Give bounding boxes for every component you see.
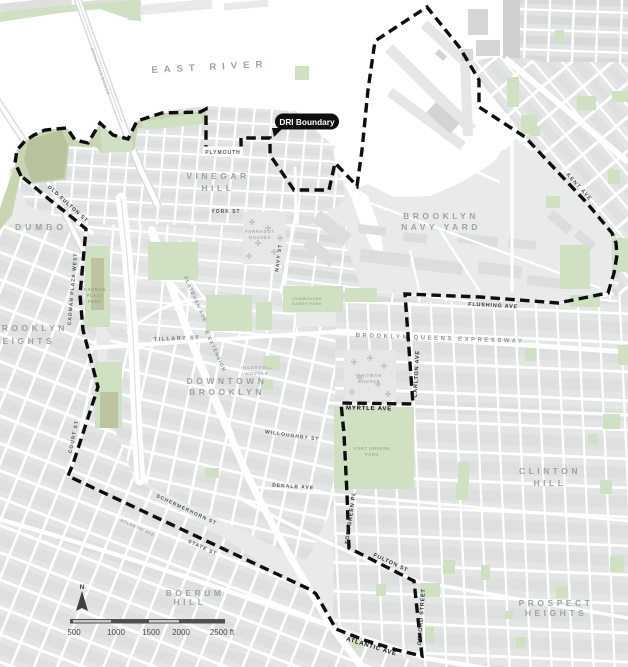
svg-text:FARRAGUT: FARRAGUT [245,229,275,234]
svg-text:PLYMOUTH: PLYMOUTH [205,150,241,156]
svg-text:WHITMAN: WHITMAN [356,373,382,378]
svg-text:DUMBO: DUMBO [15,222,67,232]
svg-text:BROOKLYN: BROOKLYN [0,323,68,333]
svg-text:2000: 2000 [172,628,190,637]
svg-text:BARRY PARK: BARRY PARK [292,302,322,306]
svg-text:1000: 1000 [107,628,125,637]
svg-text:BROOKLYN: BROOKLYN [189,387,265,397]
svg-text:HEIGHTS: HEIGHTS [0,336,55,346]
svg-text:FORT GREENE: FORT GREENE [354,446,391,451]
svg-text:CLINTON: CLINTON [519,466,581,476]
svg-text:HILL: HILL [174,597,207,607]
svg-text:VINEGAR: VINEGAR [186,171,249,181]
svg-text:HEIGHTS: HEIGHTS [525,608,587,618]
svg-text:DRI Boundary: DRI Boundary [279,117,335,127]
svg-text:PARK: PARK [88,299,102,304]
svg-text:CADMAN: CADMAN [84,287,106,292]
svg-text:1500: 1500 [142,628,160,637]
svg-text:INGERSOLL: INGERSOLL [241,365,273,370]
svg-text:BROOKLYN: BROOKLYN [403,211,479,221]
svg-text:HOUSES: HOUSES [249,235,271,240]
svg-text:HILL: HILL [202,183,235,193]
svg-text:NAVY YARD: NAVY YARD [401,222,481,232]
svg-text:YORK ST: YORK ST [211,209,240,215]
svg-text:MYRTLE AVE: MYRTLE AVE [346,406,392,413]
svg-text:HOUSES: HOUSES [246,371,268,376]
svg-text:PROSPECT: PROSPECT [519,598,594,608]
svg-text:HOUSES: HOUSES [358,379,380,384]
svg-text:HILL: HILL [534,478,567,488]
svg-text:N: N [80,584,85,591]
svg-text:PARK: PARK [365,452,379,457]
svg-text:PLAZA: PLAZA [87,293,104,298]
svg-text:COMMODORE: COMMODORE [292,297,322,301]
svg-text:500: 500 [67,628,81,637]
svg-text:2500 ft: 2500 ft [210,628,235,637]
svg-text:DOWNTOWN: DOWNTOWN [187,376,268,386]
